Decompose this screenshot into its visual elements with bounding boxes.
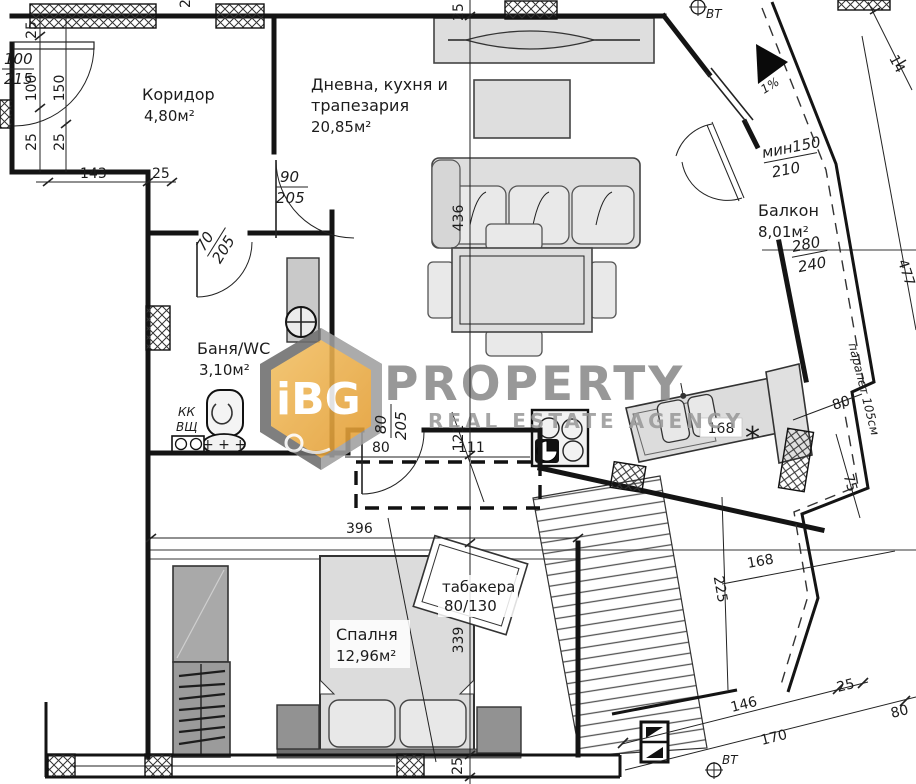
corridor-name: Коридор: [142, 85, 215, 104]
coffee-table: [474, 80, 570, 138]
chair: [486, 330, 542, 356]
dim-terrace-225: 225: [710, 575, 730, 604]
living-door-size: 90 205: [276, 168, 308, 207]
dim-bottom-146: 146: [729, 694, 759, 716]
dim-v-bottom: 25: [450, 757, 466, 775]
dim-right-80: 80: [830, 393, 852, 414]
hob-asterisk: *: [745, 421, 760, 456]
vt-bottom-label: ВТ: [722, 753, 739, 767]
dim-hall-80: 80: [372, 440, 390, 456]
living-area: 20,85м²: [311, 118, 371, 136]
floor-plan: 168 * + + +: [0, 0, 916, 784]
svg-text:80: 80: [372, 415, 390, 434]
dim-hall-111: 111: [458, 440, 485, 456]
pillow: [329, 700, 395, 747]
dim-corridor-143: 143: [80, 166, 107, 182]
logo-text: iBG: [276, 374, 361, 425]
balcony-window-size: мин150 210: [760, 133, 826, 183]
balcony-french-door: [676, 124, 742, 200]
dim-living-depth: 436: [451, 205, 467, 232]
dim-v-top: 25: [451, 3, 467, 21]
vt-top-label: ВТ: [706, 7, 723, 21]
bedroom-area: 12,96м²: [336, 647, 396, 665]
vent-symbol-bottom: ВТ: [705, 753, 739, 779]
dim-left-150: 150: [52, 75, 68, 102]
dim-bedroom-depth: 339: [451, 627, 467, 654]
chair: [590, 262, 616, 318]
svg-text:240: 240: [796, 253, 828, 276]
vent-symbol-top: ВТ: [689, 0, 723, 21]
watermark-title: PROPERTY: [384, 357, 685, 412]
bath-area: 3,10м²: [199, 361, 250, 379]
chair: [428, 262, 454, 318]
dim-bedroom-396: 396: [346, 521, 373, 537]
dim-bottom-25: 25: [835, 676, 856, 696]
bath-name: Баня/WC: [197, 339, 270, 358]
dining-table: [452, 248, 592, 332]
entrance-size: 100 215: [2, 50, 34, 88]
tabakera-name: табакера: [442, 578, 515, 596]
washing-machine: [172, 436, 204, 453]
drain-icon: [641, 722, 668, 762]
dim-bottom-80: 80: [889, 702, 910, 722]
parapet-label: парапет 105см: [846, 341, 883, 436]
chair: [486, 224, 542, 250]
dim-bottom-170: 170: [759, 727, 789, 749]
dashed-wardrobe: [356, 462, 540, 508]
vshch-label: ВЩ: [176, 420, 197, 434]
svg-text:100: 100: [4, 50, 33, 68]
dim-top-14: 14: [885, 52, 908, 75]
kk-label: КК: [178, 405, 196, 419]
svg-text:90: 90: [280, 168, 299, 186]
nightstand: [477, 707, 521, 753]
dim-left-25a: 25: [24, 21, 40, 39]
watermark-subtitle: REAL ESTATE AGENCY: [428, 409, 744, 433]
balcony-area: 8,01м²: [758, 223, 809, 241]
dim-top-20: 20: [178, 0, 194, 8]
svg-text:215: 215: [4, 70, 33, 88]
bath-door-size: 70 205: [191, 218, 241, 267]
svg-text:210: 210: [770, 158, 802, 181]
bedroom-name: Спалня: [336, 625, 398, 644]
tabakera-size: 80/130: [444, 597, 497, 615]
dim-terrace-168: 168: [746, 552, 775, 572]
corridor-area: 4,80м²: [144, 107, 195, 125]
dim-right-75: 75: [840, 472, 860, 494]
dim-left-25c: 25: [52, 133, 68, 151]
svg-text:205: 205: [392, 411, 410, 440]
balcony-name: Балкон: [758, 201, 819, 220]
dim-balcony-477: 477: [894, 258, 916, 288]
dim-left-25b: 25: [24, 133, 40, 151]
terrace: [533, 476, 737, 762]
nightstand: [277, 705, 319, 749]
dim-corridor-25: 25: [152, 166, 170, 182]
tv-cabinet: [434, 18, 654, 63]
wardrobe: [173, 566, 230, 757]
pillow: [400, 700, 466, 747]
living-name-2: трапезария: [311, 96, 409, 115]
living-name-1: Дневна, кухня и: [311, 75, 448, 94]
svg-text:205: 205: [276, 189, 305, 207]
floor-plan-drawing: 168 * + + +: [0, 0, 916, 784]
